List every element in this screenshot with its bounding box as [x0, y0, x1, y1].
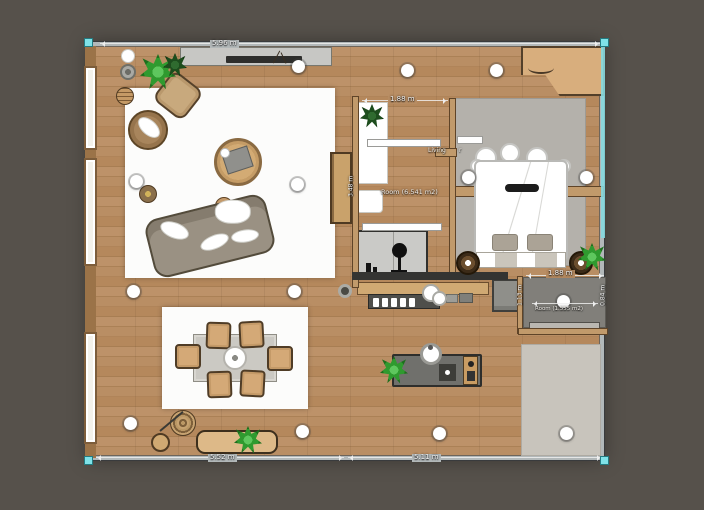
- faucet: [428, 345, 433, 350]
- floor-pot[interactable]: [338, 284, 352, 298]
- ceiling-light[interactable]: [127, 285, 140, 298]
- dining-chair[interactable]: [239, 369, 265, 397]
- dish: [373, 298, 379, 307]
- dimension-label-bottom-right: 5.11 m: [412, 454, 441, 462]
- selected-wall-highlight[interactable]: [601, 46, 605, 238]
- ceiling-light[interactable]: [292, 60, 305, 73]
- dish: [409, 298, 415, 307]
- tv[interactable]: [226, 56, 302, 63]
- knob: [445, 370, 450, 375]
- room-label-study: Room (6.541 m2): [381, 188, 438, 196]
- selection-handle[interactable]: [600, 38, 609, 47]
- dining-chair[interactable]: [206, 322, 232, 350]
- dimension-label-bottom-left: 5.52 m: [208, 454, 237, 462]
- wall-pier[interactable]: [85, 46, 96, 66]
- bed-foot-bench[interactable]: [476, 252, 566, 268]
- gray-pot[interactable]: [120, 64, 136, 80]
- wall-pier[interactable]: [85, 266, 96, 332]
- kitchen-top-wall[interactable]: [352, 272, 508, 280]
- bottom-right-rug[interactable]: [521, 344, 601, 456]
- storage-bottom-wall[interactable]: [518, 328, 608, 335]
- ceiling-light[interactable]: [490, 64, 503, 77]
- door-bedroom[interactable]: [457, 136, 483, 144]
- selection-handle[interactable]: [84, 456, 93, 465]
- ceiling-light[interactable]: [560, 427, 573, 440]
- dimension-label-study-height: 3.48 m: [349, 171, 356, 201]
- dish: [391, 298, 397, 307]
- dimension-line-bottom-right: [348, 457, 602, 458]
- room-label-living-partial: Living: [428, 147, 446, 154]
- window[interactable]: [84, 66, 97, 150]
- wardrobe-arc: [528, 62, 554, 74]
- door-study[interactable]: [367, 139, 441, 147]
- selection-handle[interactable]: [84, 38, 93, 47]
- ceiling-light[interactable]: [433, 427, 446, 440]
- room-label-storage: Room (1.555 m2): [535, 306, 583, 312]
- dimension-line-top: [100, 43, 600, 44]
- dining-chair[interactable]: [175, 344, 201, 369]
- ceiling-light[interactable]: [124, 417, 137, 430]
- wall-pier[interactable]: [85, 150, 96, 158]
- nightstand[interactable]: [456, 251, 480, 275]
- foot-pillow: [527, 234, 553, 251]
- counter-appliance[interactable]: [446, 294, 458, 303]
- bed[interactable]: [474, 160, 568, 260]
- ceiling-light[interactable]: [401, 64, 414, 77]
- selection-handle[interactable]: [600, 456, 609, 465]
- counter-appliance[interactable]: [459, 293, 473, 303]
- dimension-line-storage-inner: [532, 303, 598, 304]
- window[interactable]: [84, 332, 97, 444]
- ceiling-light[interactable]: [580, 171, 593, 184]
- interior-wall-bedroom-left[interactable]: [449, 98, 456, 278]
- bed-runner-handle: [505, 184, 539, 192]
- striped-side-table[interactable]: [116, 87, 134, 105]
- ceiling-light[interactable]: [296, 425, 309, 438]
- cup: [220, 148, 230, 158]
- window[interactable]: [84, 158, 97, 266]
- floor-plan-canvas: 5.96 m 5.52 m 5.11 m 1.88 m 3.48 m 1.88 …: [0, 0, 704, 510]
- ceiling-light[interactable]: [291, 178, 304, 191]
- dimension-label-study-width: 1.88 m: [388, 96, 417, 104]
- board-item: [468, 361, 474, 367]
- ceiling-light[interactable]: [130, 175, 143, 188]
- centerpiece: [223, 346, 247, 370]
- kitchen-sink-bowl: [432, 291, 447, 306]
- ceiling-light[interactable]: [462, 171, 475, 184]
- dimension-label-top: 5.96 m: [210, 40, 239, 48]
- dimension-label-storage-right: 0.84 m: [601, 280, 608, 310]
- dimension-label-storage-left: 1.13 m: [518, 280, 525, 310]
- dish: [382, 298, 388, 307]
- board-item: [467, 371, 475, 381]
- lamp-stem: [398, 257, 401, 271]
- cooktop-module[interactable]: [439, 364, 456, 381]
- door-study-south[interactable]: [362, 223, 442, 231]
- lamp-silhouette: [392, 243, 407, 258]
- room-label-living-partial-2: r: [459, 147, 461, 154]
- ceiling-light[interactable]: [288, 285, 301, 298]
- cutting-board[interactable]: [463, 356, 478, 385]
- sofa-blanket: [215, 200, 251, 224]
- dimension-label-storage-width: 1.88 m: [546, 270, 575, 278]
- dining-chair[interactable]: [238, 320, 264, 348]
- dish: [400, 298, 406, 307]
- dining-chair[interactable]: [207, 371, 233, 399]
- round-stool[interactable]: [151, 433, 170, 452]
- white-vase[interactable]: [121, 49, 135, 63]
- dining-chair[interactable]: [267, 346, 293, 371]
- sphere-side-table[interactable]: [139, 185, 157, 203]
- round-woven-rug[interactable]: [170, 410, 196, 436]
- foot-pillow: [492, 234, 518, 251]
- small-table[interactable]: [356, 190, 383, 213]
